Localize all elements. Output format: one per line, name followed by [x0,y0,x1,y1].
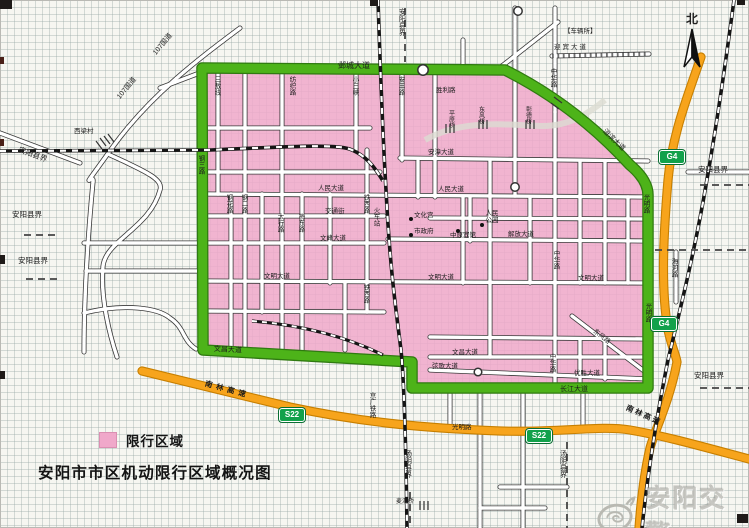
railway-label-jingguang: 京广铁路 [368,392,375,418]
boundary-label-anyang-county: 安阳县界 [18,257,48,265]
road-label-renmin-avenue: 人民大道 [438,186,464,193]
boundary-label-tangyin-county: 汤阴县界 [404,450,412,478]
boundary-label-anyang-county: 安阳县界 [698,166,728,174]
road-label-ganger-road: 钢二路 [240,194,247,214]
highway-shield-s22: S22 [526,429,552,443]
road-label-renmin-avenue: 人民大道 [318,185,344,192]
bridge-label-dongfeng: 东风桥 [477,106,483,124]
road-label-gangsan-road: 钢三路 [197,155,204,175]
road-label-ganghua-road: 钢花路 [225,194,232,214]
highway-shield-s22: S22 [279,408,305,422]
road-label-wenming-avenue: 文明大道 [264,273,290,280]
road-label-xiaosanxia: 小三峡 [351,76,358,96]
poi-dot [409,217,413,221]
road-label-wenchang-avenue: 文昌大道 [452,349,478,356]
poi-label-vehicle-office: 【车辆所】 [564,28,597,35]
highway-shield-g4: G4 [659,150,685,164]
poi-label-peoples-park: 人民 公园 [484,210,500,224]
road-label-guangming-road: 光明路 [642,194,649,214]
road-label-jiaotong-street: 交通街 [325,208,345,215]
poi-dot [409,233,413,237]
village-label-xiliangcun: 西梁村 [74,128,94,135]
road-label-anzhang-avenue: 安漳大道 [428,149,454,156]
road-label-tiexi-road: 铁西路 [362,194,369,214]
road-label-shengli-road: 胜利路 [436,87,456,94]
road-label-jiefang-avenue: 解放大道 [508,231,534,238]
road-label-sanao-line: 三敖线 [213,76,220,96]
road-label-guangming-road: 光明路 [644,303,651,323]
road-label-wenchang-avenue-west: 文昌大道 [214,346,242,355]
road-label-yousheng-avenue: 优胜大道 [574,370,600,377]
map-canvas: 北 邺城大道钢三路文昌大道长江大道光明路光明路洹滨大道三敖线纺织路小三峡安丰路胜… [0,0,749,528]
legend: 限行区域 [99,430,184,450]
poi-label-cultural-palace: 文化宫 [414,212,434,219]
road-label-zhonghua-road: 中华路 [552,250,559,270]
boundary-label-tangyin-county: 汤阴县界 [559,450,567,478]
road-label-zhonghua-road: 中华路 [548,353,555,373]
road-label-yingbin-avenue: 迎宾大道 [554,44,588,51]
road-label-wenming-avenue: 文明大道 [428,274,454,281]
poi-dot [456,229,460,233]
compass-north-label: 北 [672,10,712,27]
road-label-wenfeng-avenue: 文峰大道 [320,235,346,242]
road-label-guangming-road-south: 光明路 [452,424,472,431]
legend-restricted-zone-swatch [99,432,117,448]
watermark-text: 安阳交警 [646,479,749,528]
traffic-police-logo-icon [592,492,646,528]
road-label-yecheng-avenue: 邺城大道 [338,62,370,71]
road-label-zhonghua-road: 中华路 [549,68,556,88]
boundary-label-anyang-county: 安阳县界 [694,372,724,380]
compass-needle-icon [672,27,712,71]
poi-label-zhongyuan-hotel: 中原宾馆 [450,232,476,239]
poi-label-railway-station: 火车站 [372,207,379,227]
road-label-taihang-road: 太行路 [276,213,283,233]
compass: 北 [672,10,712,76]
boundary-label-anyang-county: 安阳县界 [12,211,42,219]
bridge-label-zhangde: 彰德桥 [524,106,530,124]
road-label-xiange-avenue: 弦歌大道 [432,363,458,370]
poi-dot [480,223,484,227]
road-label-meidong-road: 梅东路 [297,213,304,233]
page-title: 安阳市市区机动限行区域概况图 [38,461,272,483]
road-label-tiexi-road: 铁西路 [362,284,369,304]
watermark: 安阳交警 [592,479,749,528]
boundary-label-anyang-county: 安阳县界 [398,8,406,36]
bridge-label-pingyuan: 平原桥 [447,110,453,128]
road-label-fangzhi-road: 纺织路 [288,76,295,96]
legend-restricted-zone-label: 限行区域 [126,430,184,450]
road-label-haihe-road: 海河路 [670,258,677,278]
road-label-changjiang-avenue: 长江大道 [560,386,588,394]
poi-label-city-hall: 市政府 [414,228,434,235]
road-label-anfeng-road: 安丰路 [397,76,404,96]
road-label-wenming-avenue: 文明大道 [578,275,604,282]
highway-shield-g4: G4 [651,317,677,331]
bridge-label-maidong: 麦洞桥 [396,499,414,505]
